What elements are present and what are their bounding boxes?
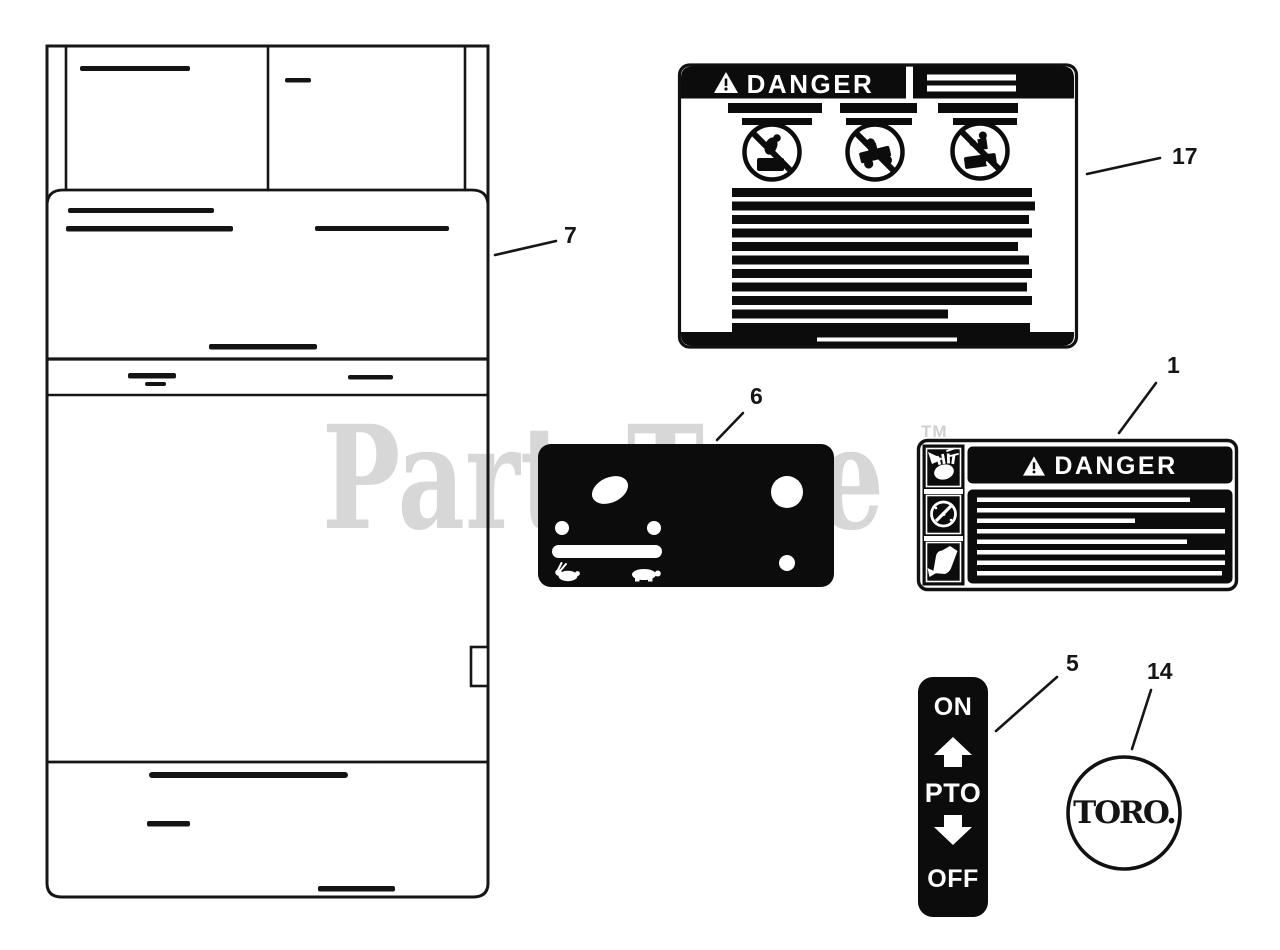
warning-triangle-icon <box>714 72 738 93</box>
control-panel-decal <box>538 444 834 587</box>
pto-on-label: ON <box>918 694 988 720</box>
toro-brand-text: TORO. <box>1067 796 1181 831</box>
callout-5: 5 <box>1066 652 1079 675</box>
prohibition-circle-icon-3 <box>953 124 1008 179</box>
gauge-cutout <box>771 476 803 508</box>
callout-17: 17 <box>1172 145 1198 168</box>
callout-6: 6 <box>750 385 763 408</box>
prohibition-circle-icon-1 <box>745 125 800 180</box>
callout-14: 14 <box>1147 660 1173 683</box>
prohibition-circle-icon-2 <box>848 125 903 180</box>
throttle-slot <box>552 545 662 558</box>
callout-7: 7 <box>564 224 577 247</box>
danger-large-header: DANGER <box>681 66 907 99</box>
sheet-edge-notch <box>471 647 488 686</box>
pto-off-label: OFF <box>918 866 988 892</box>
pto-label: PTO <box>918 780 988 806</box>
callout-1: 1 <box>1167 354 1180 377</box>
danger-large-title: DANGER <box>747 71 875 97</box>
watermark-tm-mark: TM <box>921 422 948 441</box>
warning-triangle-icon <box>1023 456 1045 476</box>
danger-small-title: DANGER <box>1054 454 1177 479</box>
danger-small-header: DANGER <box>968 447 1233 484</box>
parts-diagram-page: PartsTree TM <box>0 0 1280 950</box>
danger-decal-large <box>680 65 1077 347</box>
